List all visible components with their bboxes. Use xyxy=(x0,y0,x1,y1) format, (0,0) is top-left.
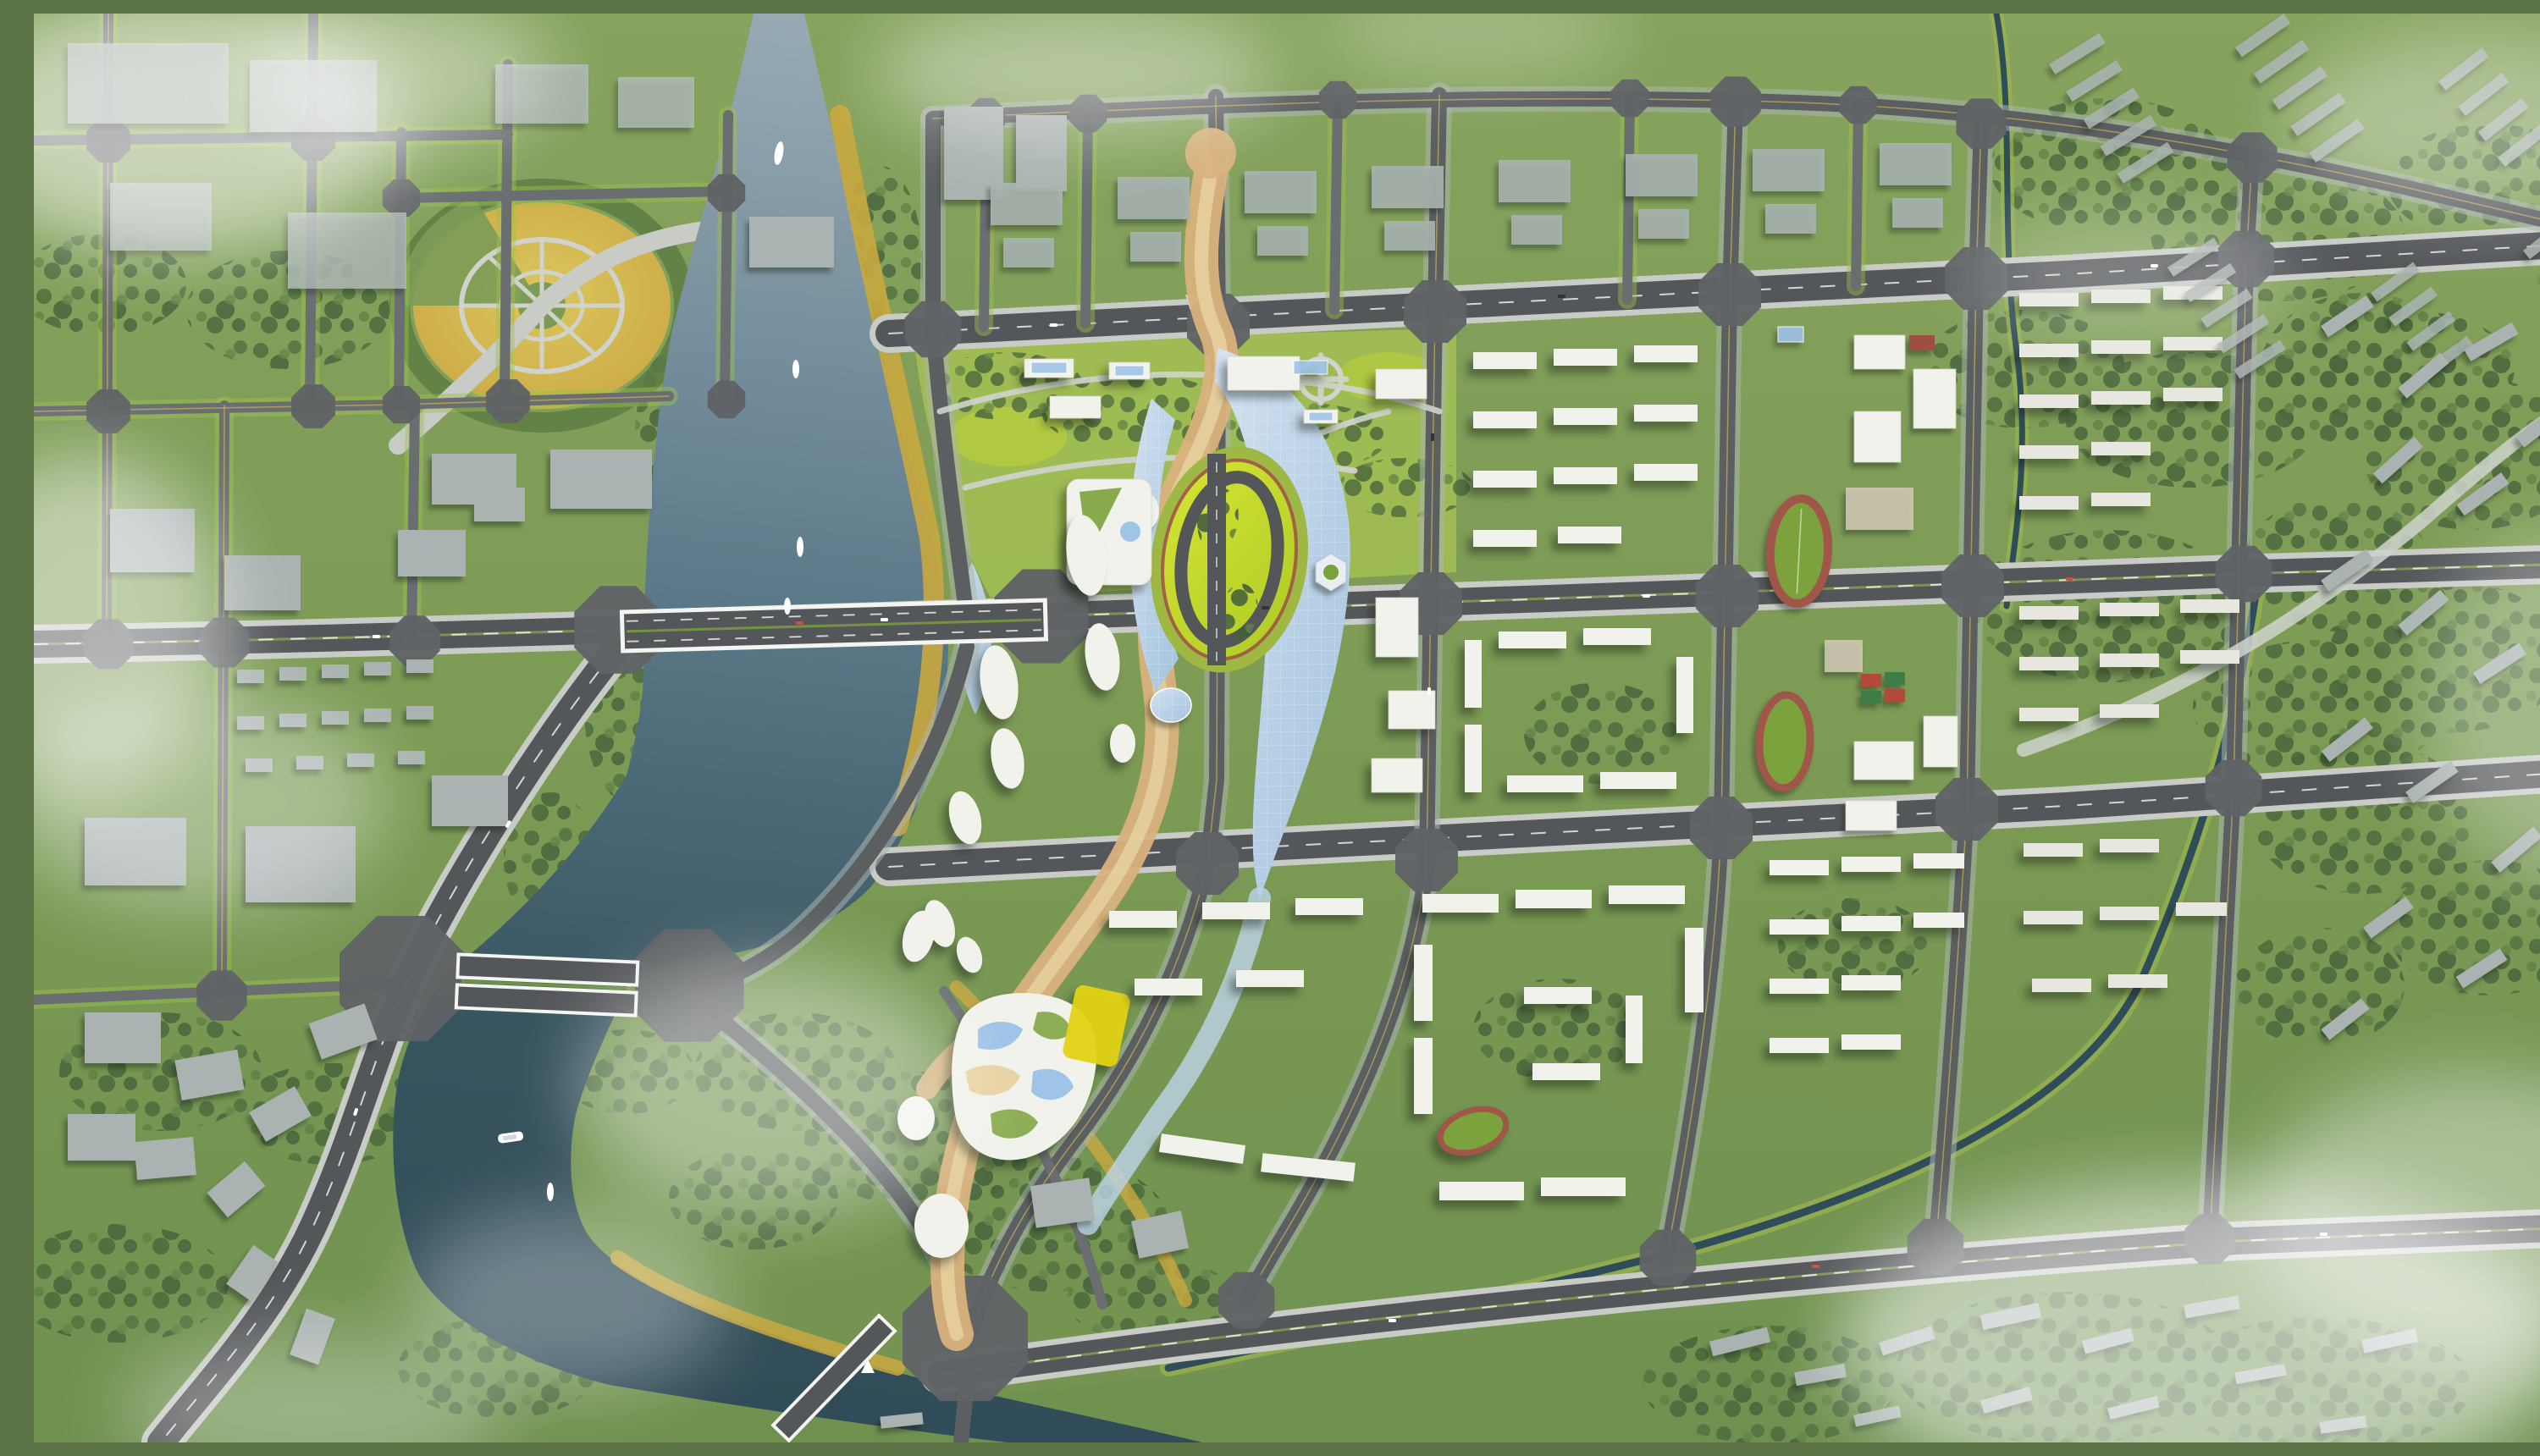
boat xyxy=(547,1183,554,1201)
boat xyxy=(792,360,799,378)
fog-patch xyxy=(576,962,965,1216)
masterplan-rendering: Top-down bird's-eye architectural visual… xyxy=(34,14,2540,1442)
running-track xyxy=(1768,497,1830,604)
egg-hall xyxy=(1151,688,1191,722)
promenade-north-plaza xyxy=(1185,128,1236,179)
boat xyxy=(784,598,791,615)
fog-patch xyxy=(1973,208,2294,344)
masterplan-figure: Riverfront new-town urban master plan — … xyxy=(34,14,2540,1442)
boat xyxy=(797,537,803,557)
teardrop-plaza xyxy=(914,1194,969,1258)
twin-deck-bridge xyxy=(456,954,638,1015)
running-track-2 xyxy=(1757,694,1813,790)
